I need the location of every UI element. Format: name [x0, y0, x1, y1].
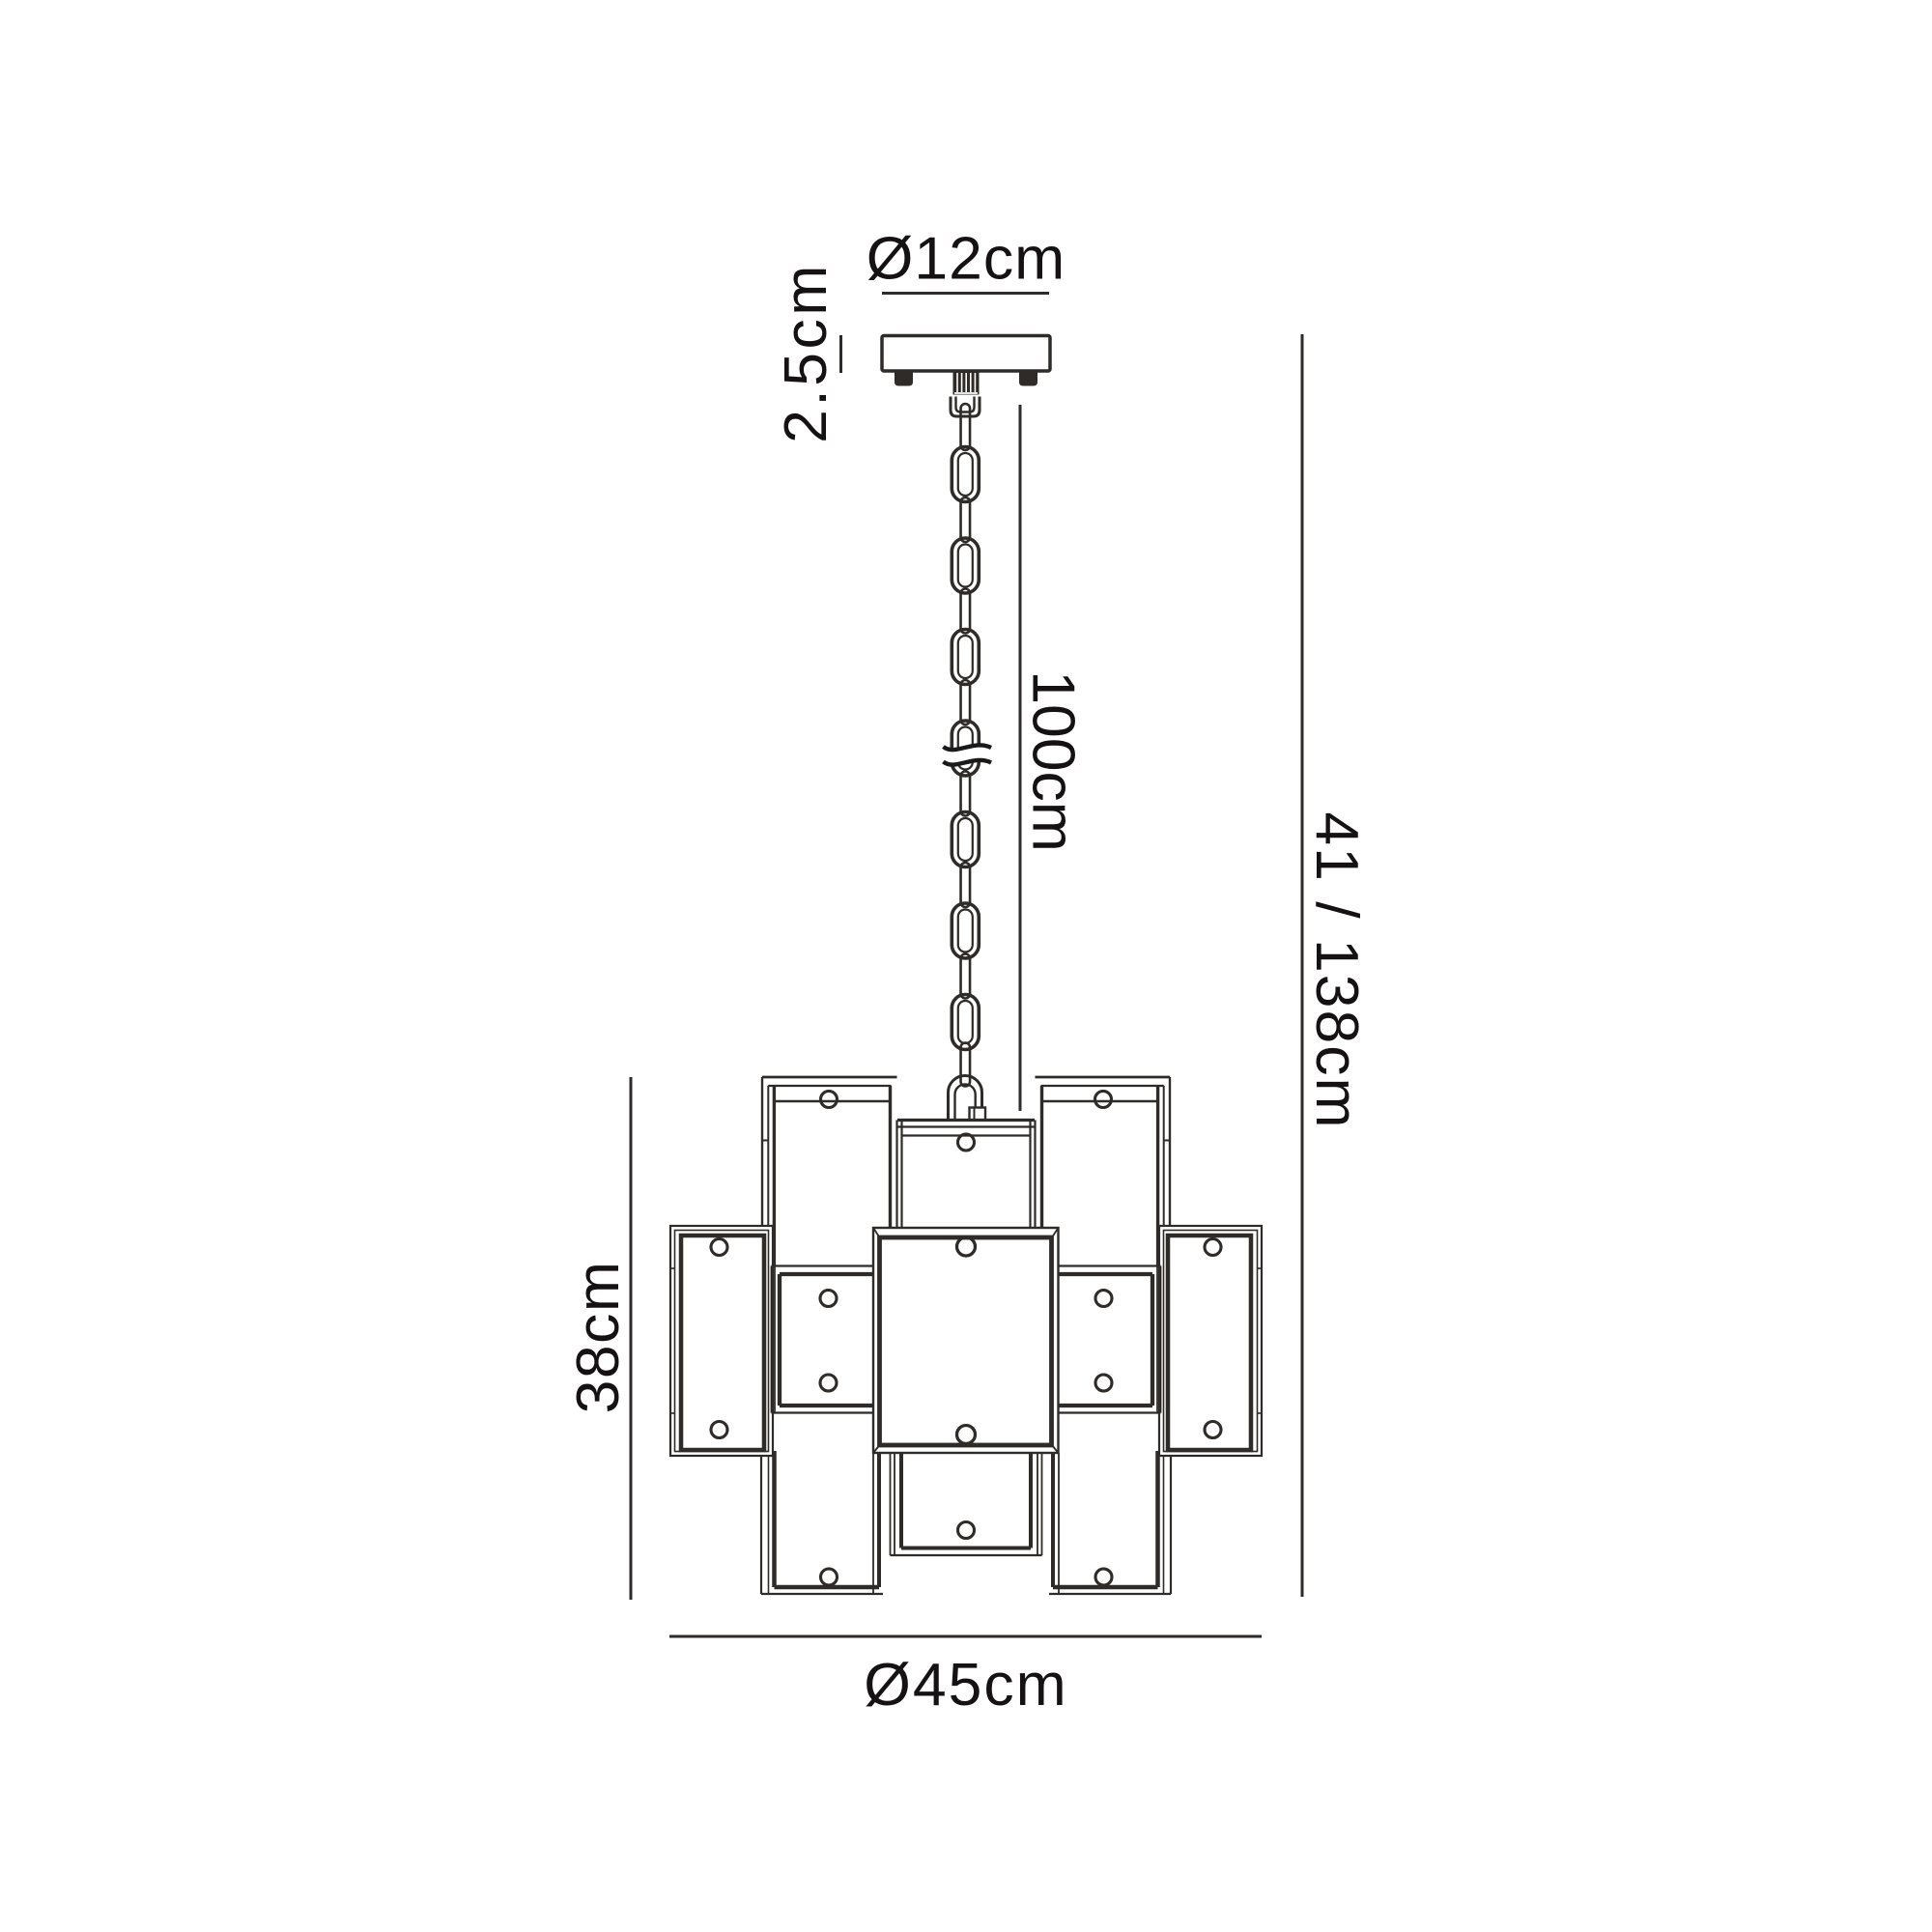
svg-text:Ø45cm: Ø45cm — [864, 1651, 1067, 1719]
svg-text:38cm: 38cm — [564, 1261, 632, 1414]
svg-text:2.5cm: 2.5cm — [772, 262, 839, 443]
svg-text:Ø12cm: Ø12cm — [867, 225, 1065, 293]
svg-text:100cm: 100cm — [1020, 670, 1088, 852]
svg-text:41 / 138cm: 41 / 138cm — [1303, 811, 1371, 1129]
